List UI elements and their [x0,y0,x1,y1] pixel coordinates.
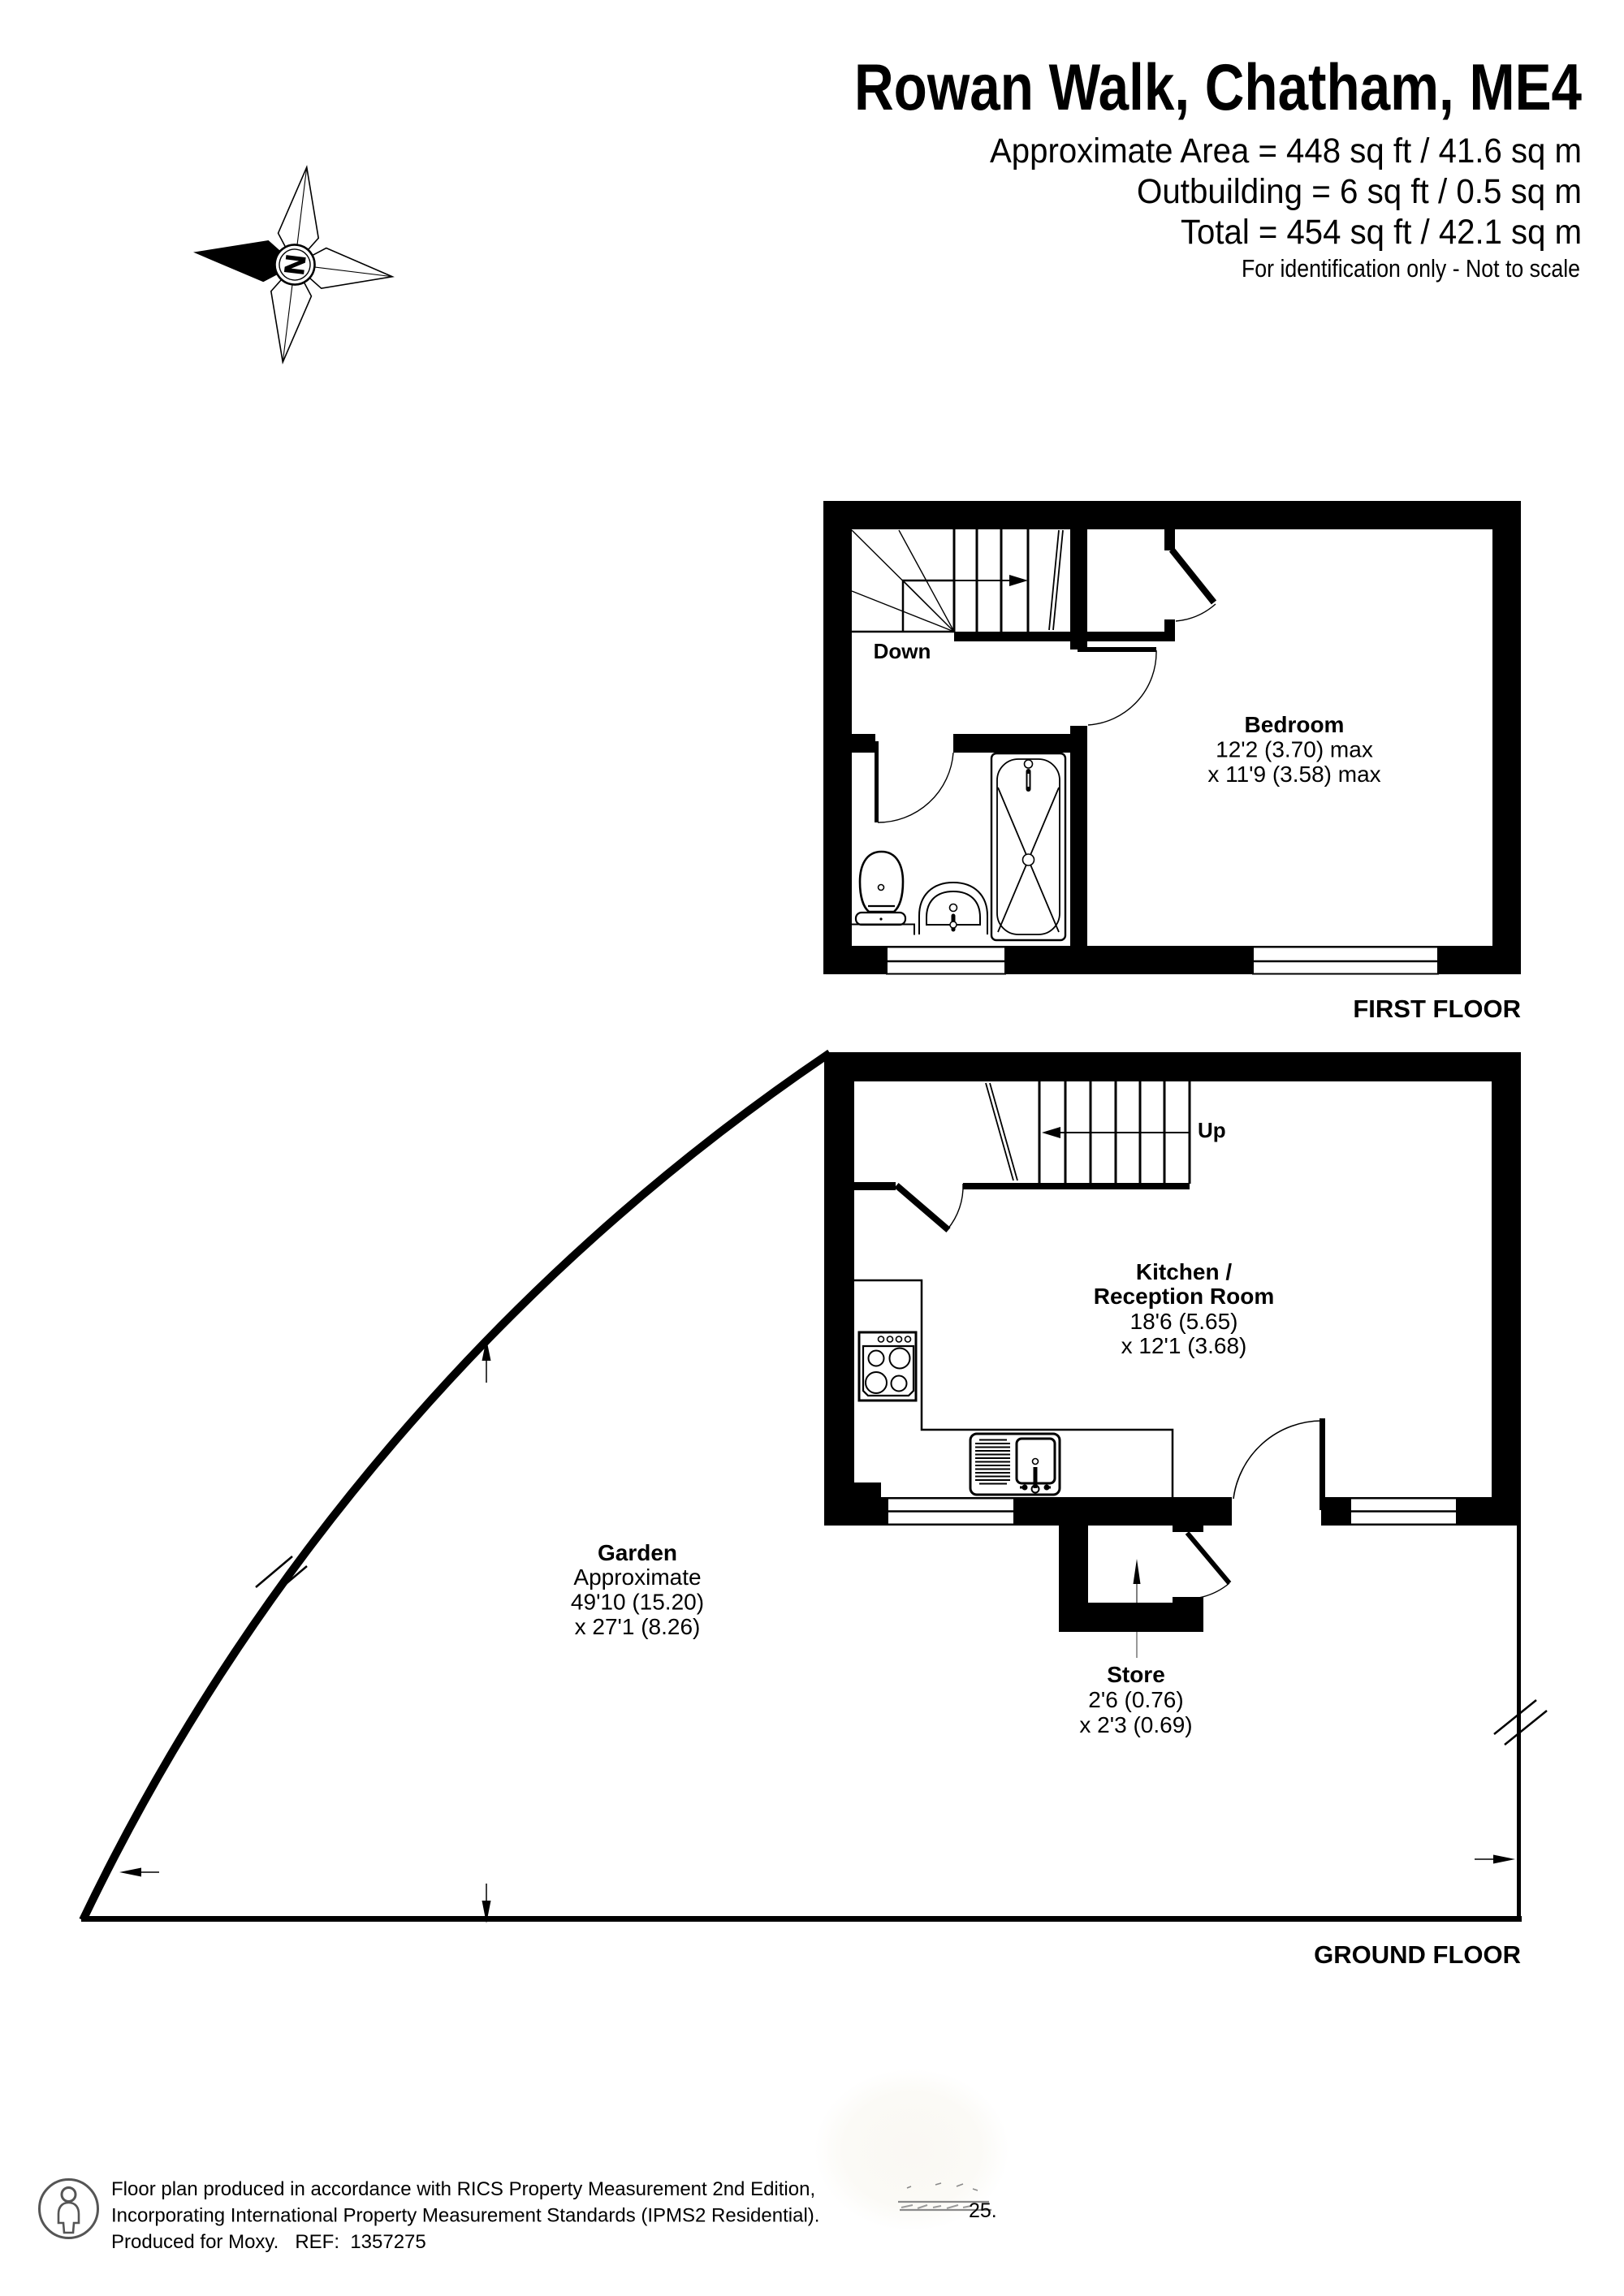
svg-text:N: N [279,253,313,277]
svg-text:Up: Up [1198,1118,1226,1142]
svg-text:Produced for Moxy. REF: 135: Produced for Moxy. REF: 1357275 [111,2231,426,2253]
svg-text:Down: Down [874,639,931,663]
svg-text:Outbuilding = 6 sq ft / 0.5 sq: Outbuilding = 6 sq ft / 0.5 sq m [1137,172,1582,211]
svg-text:FIRST FLOOR: FIRST FLOOR [1353,995,1521,1023]
svg-text:12'2 (3.70) max: 12'2 (3.70) max [1216,737,1373,762]
svg-text:Rowan Walk, Chatham, ME4: Rowan Walk, Chatham, ME4 [854,51,1582,124]
svg-text:Garden: Garden [598,1540,677,1565]
svg-text:25.: 25. [969,2199,997,2222]
svg-text:Incorporating International Pr: Incorporating International Property Mea… [111,2205,819,2227]
svg-text:Total = 454 sq ft / 42.1 sq m: Total = 454 sq ft / 42.1 sq m [1181,213,1582,252]
svg-text:Floor plan produced in accorda: Floor plan produced in accordance with R… [111,2178,815,2200]
svg-text:x 27'1 (8.26): x 27'1 (8.26) [575,1614,701,1639]
svg-text:For identification only - Not: For identification only - Not to scale [1242,254,1580,283]
svg-text:Approximate Area = 448 sq ft /: Approximate Area = 448 sq ft / 41.6 sq m [990,132,1582,170]
svg-text:Approximate: Approximate [573,1564,701,1590]
svg-text:x 12'1 (3.68): x 12'1 (3.68) [1121,1333,1247,1358]
svg-text:Store: Store [1107,1662,1165,1687]
svg-text:18'6 (5.65): 18'6 (5.65) [1130,1309,1238,1334]
svg-text:2'6 (0.76): 2'6 (0.76) [1088,1687,1183,1712]
svg-text:x 2'3 (0.69): x 2'3 (0.69) [1079,1712,1192,1737]
svg-text:x 11'9 (3.58) max: x 11'9 (3.58) max [1207,762,1380,787]
svg-text:Reception Room: Reception Room [1094,1284,1274,1309]
svg-text:Bedroom: Bedroom [1245,712,1345,737]
svg-text:49'10 (15.20): 49'10 (15.20) [571,1590,704,1615]
svg-text:Kitchen /: Kitchen / [1136,1259,1232,1284]
svg-text:GROUND FLOOR: GROUND FLOOR [1314,1940,1521,1969]
